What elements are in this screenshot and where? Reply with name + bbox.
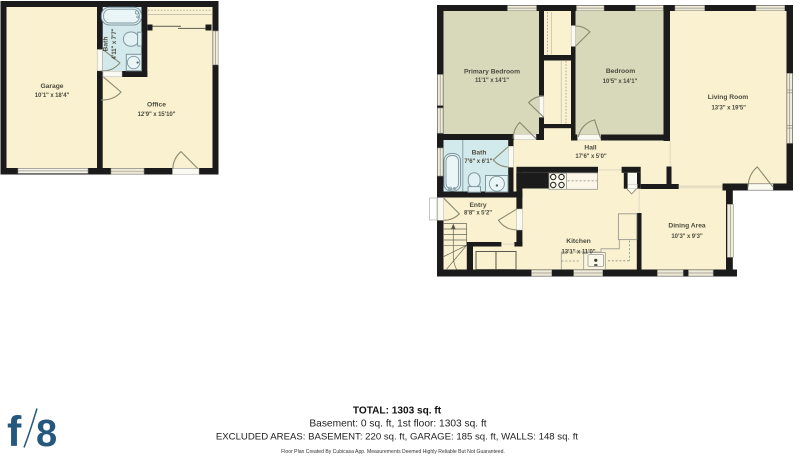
svg-text:Living Room: Living Room (708, 94, 749, 101)
svg-text:Bath: Bath (472, 150, 487, 157)
svg-text:12’9" x 15’10": 12’9" x 15’10" (138, 112, 176, 118)
svg-text:13’1" x 11’0": 13’1" x 11’0" (561, 249, 595, 255)
svg-text:Kitchen: Kitchen (566, 238, 591, 245)
svg-text:13’3" x 19’5": 13’3" x 19’5" (711, 106, 746, 112)
svg-text:Bedroom: Bedroom (606, 68, 635, 75)
svg-text:Floor Plan Created By Cubicasa: Floor Plan Created By Cubicasa App. Meas… (281, 449, 505, 455)
svg-text:EXCLUDED AREAS: BASEMENT: 220: EXCLUDED AREAS: BASEMENT: 220 sq. ft, GA… (216, 432, 579, 443)
svg-text:10’5" x 14’1": 10’5" x 14’1" (603, 79, 638, 85)
svg-text:Entry: Entry (469, 202, 486, 209)
svg-text:10’3" x 9’3": 10’3" x 9’3" (671, 234, 702, 240)
svg-text:Dining Area: Dining Area (668, 223, 706, 230)
svg-text:Primary Bedroom: Primary Bedroom (464, 69, 520, 76)
svg-text:Hall: Hall (584, 145, 596, 152)
svg-text:10’1" x 18’4": 10’1" x 18’4" (35, 93, 70, 99)
svg-text:TOTAL: 1303 sq. ft: TOTAL: 1303 sq. ft (353, 406, 442, 417)
svg-text:8’8" x 5’2": 8’8" x 5’2" (464, 211, 492, 217)
svg-text:17’6" x 5’0": 17’6" x 5’0" (575, 154, 606, 160)
svg-text:Bath: Bath (103, 37, 110, 52)
svg-text:Garage: Garage (40, 83, 63, 90)
svg-text:Basement: 0 sq. ft, 1st floor:: Basement: 0 sq. ft, 1st floor: 1303 sq. … (309, 419, 486, 430)
svg-text:8: 8 (36, 413, 57, 455)
svg-text:7’6" x 6’1": 7’6" x 6’1" (464, 159, 492, 165)
svg-text:Office: Office (147, 102, 166, 109)
svg-text:f: f (7, 408, 22, 456)
svg-text:4’11" x 7’7": 4’11" x 7’7" (112, 28, 118, 59)
svg-text:11’1" x 14’1": 11’1" x 14’1" (475, 78, 509, 84)
